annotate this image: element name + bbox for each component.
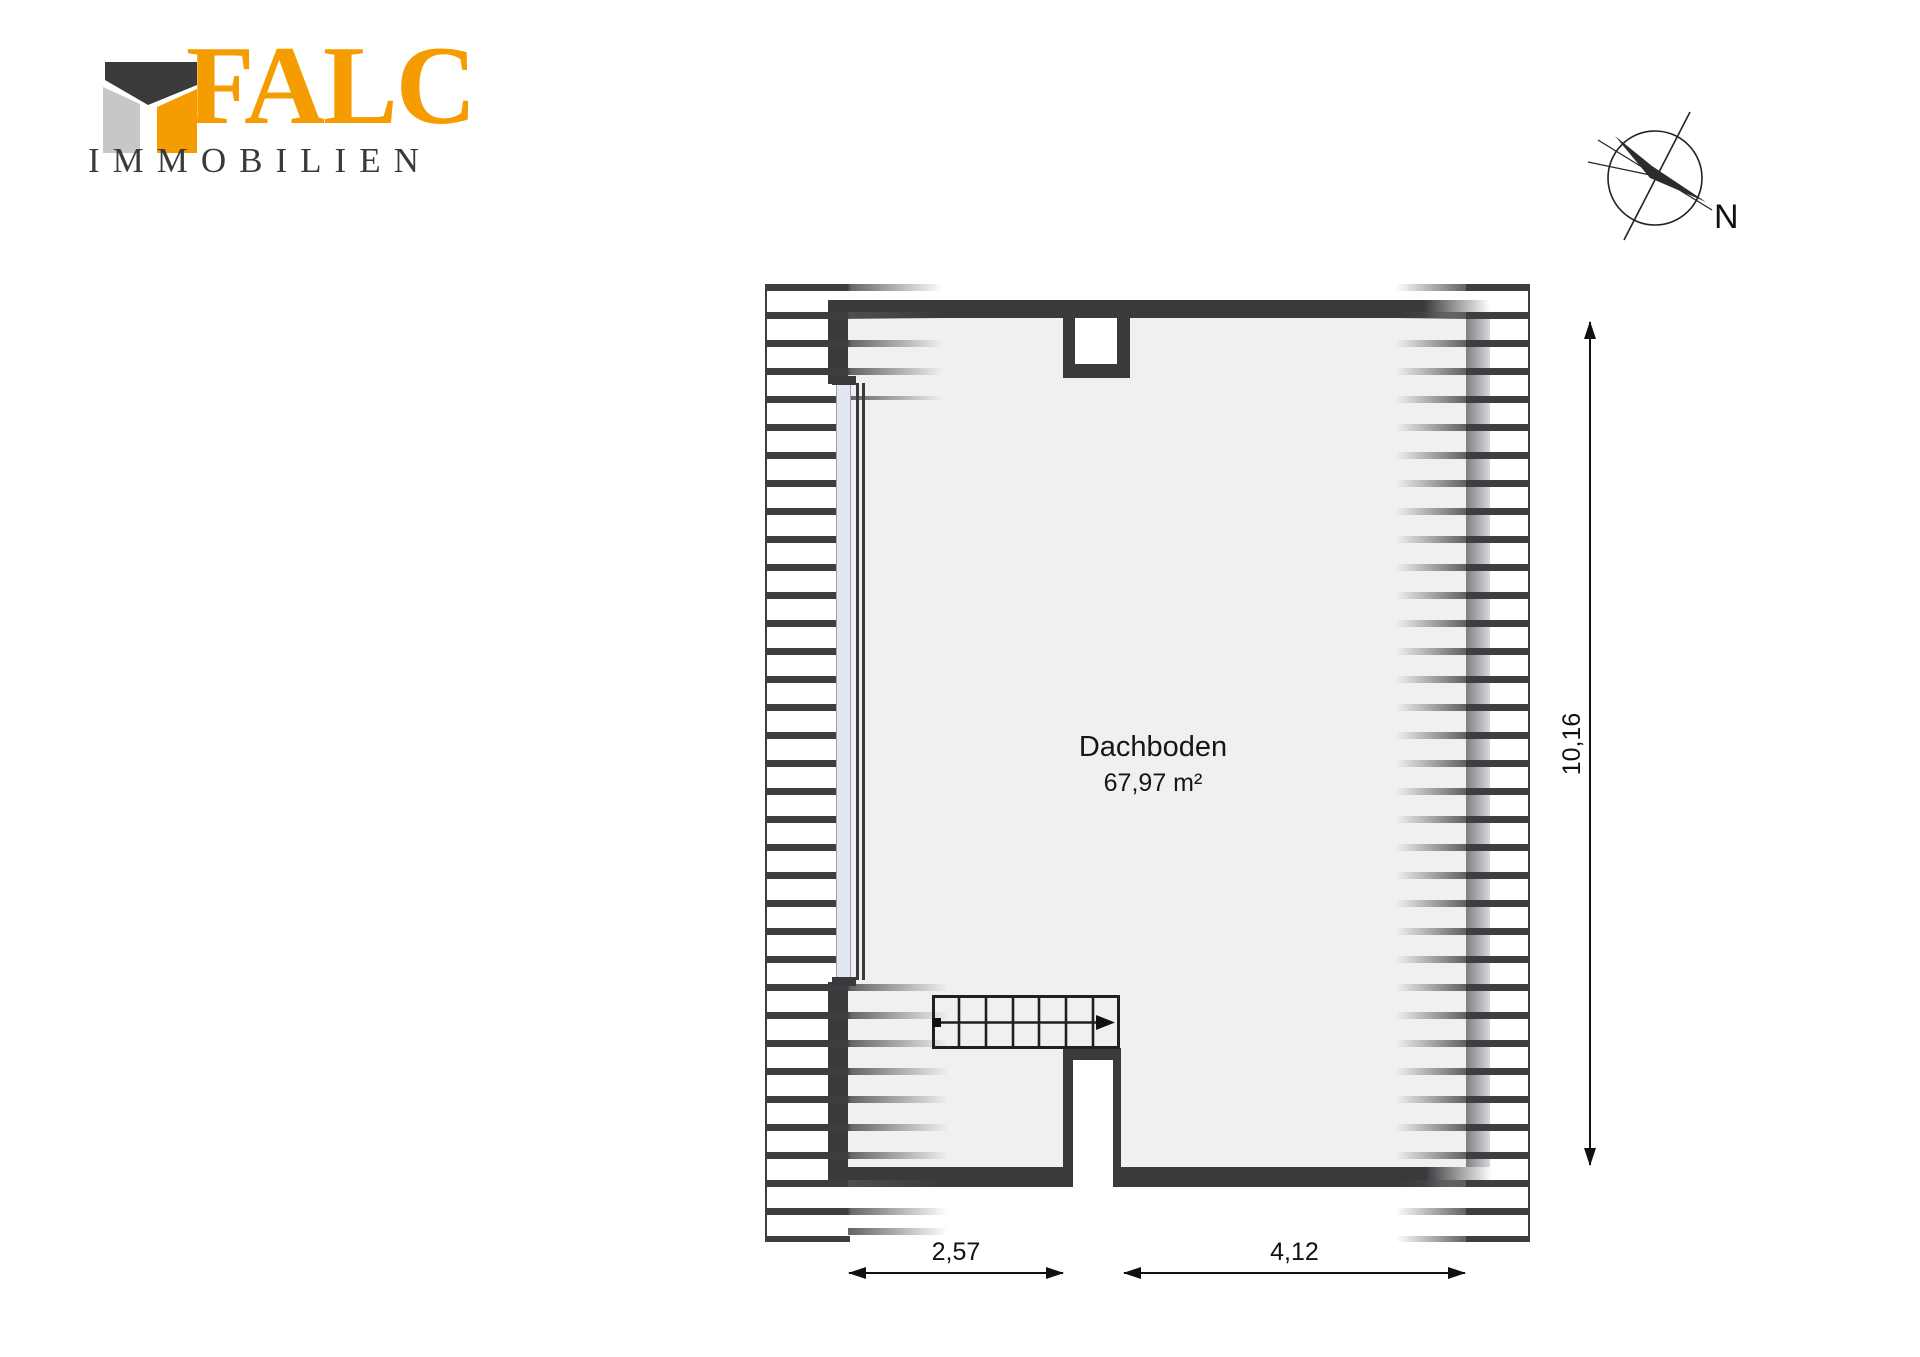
dim-width-left-label: 2,57 <box>849 1238 1063 1267</box>
north-label: N <box>1714 198 1739 236</box>
arrow-up-icon <box>1584 321 1596 339</box>
arrow-left-icon <box>848 1267 866 1279</box>
staircase <box>932 995 1122 1051</box>
arrow-down-icon <box>1584 1148 1596 1166</box>
arrow-left-icon <box>1123 1267 1141 1279</box>
window-cap-bottom <box>832 977 856 986</box>
door-opening <box>1073 1060 1113 1187</box>
arrow-right-icon <box>1046 1267 1064 1279</box>
window-cap-top <box>832 376 856 385</box>
stair-arrow-head <box>1096 1015 1115 1030</box>
window-frame-line <box>862 383 865 980</box>
brand-name: FALC <box>186 30 475 142</box>
room-name: Dachboden <box>1003 731 1303 764</box>
hatch-fade-right <box>1396 284 1466 1242</box>
brand-subtitle: IMMOBILIEN <box>88 141 432 181</box>
falc-logo-icon <box>103 62 197 153</box>
compass-icon: N <box>1580 100 1755 250</box>
room-label: Dachboden 67,97 m² <box>1003 731 1303 798</box>
window-frame-line <box>856 383 859 980</box>
dim-width-left-line <box>849 1272 1063 1274</box>
chimney-opening <box>1075 318 1117 364</box>
room-area: 67,97 m² <box>1003 769 1303 798</box>
dim-height-label: 10,16 <box>1542 699 1602 789</box>
roof-hatch-right <box>1466 284 1529 1242</box>
window <box>836 383 851 980</box>
roof-edge-right <box>1528 284 1530 1242</box>
stair-arrow-start <box>932 1018 941 1027</box>
dim-width-right-label: 4,12 <box>1124 1238 1465 1267</box>
floorplan-canvas: FALC IMMOBILIEN N <box>0 0 1920 1357</box>
roof-edge-left <box>765 284 767 1242</box>
arrow-right-icon <box>1448 1267 1466 1279</box>
dim-width-right-line <box>1124 1272 1465 1274</box>
